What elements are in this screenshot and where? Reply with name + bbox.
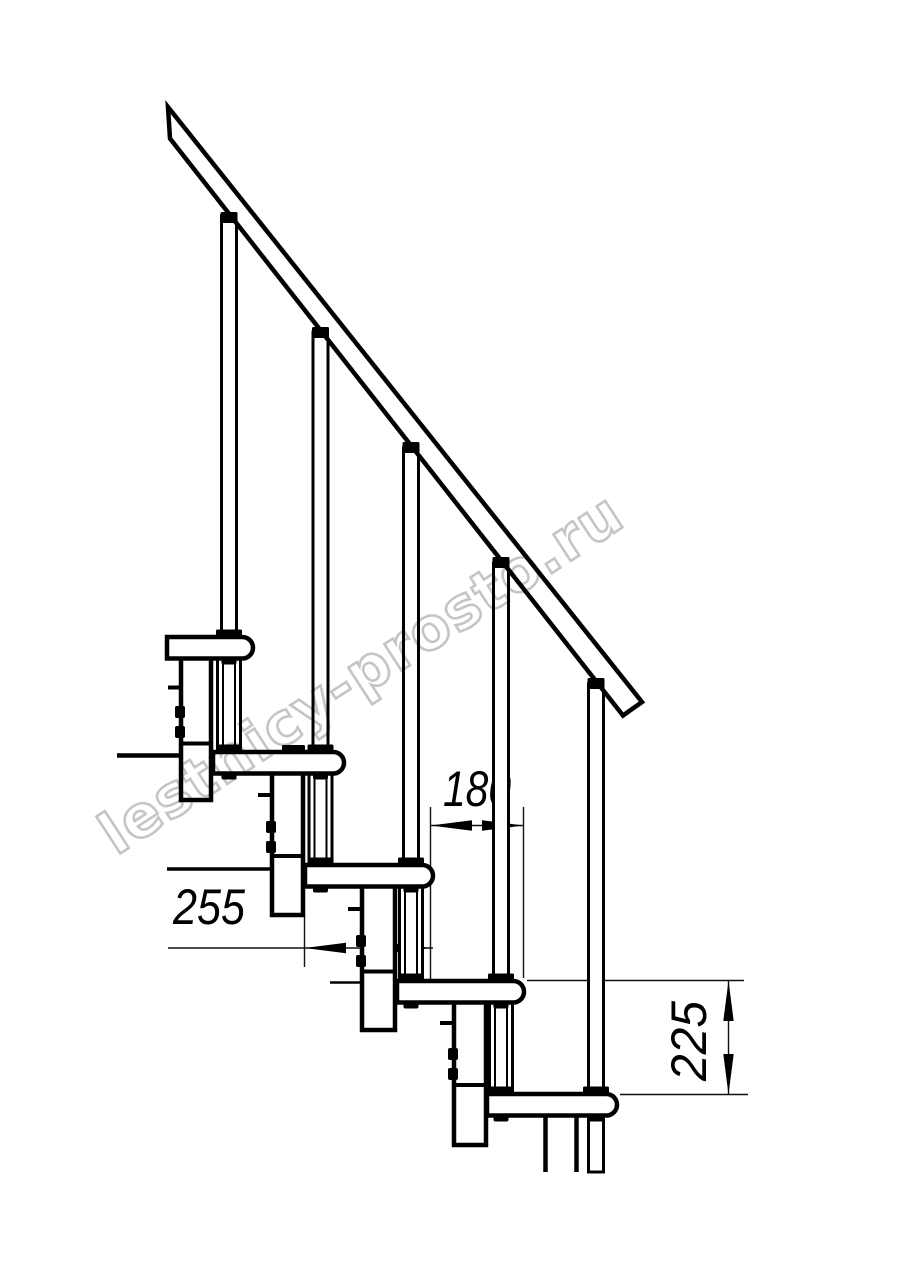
- nut-icon: [313, 773, 328, 780]
- nut-icon: [494, 1002, 509, 1009]
- arrowhead-left-icon: [305, 943, 347, 953]
- arrowhead-up-icon: [723, 981, 733, 1022]
- nut-icon: [404, 1002, 419, 1009]
- tread-5: [487, 1094, 617, 1116]
- baluster-cap-icon: [403, 442, 420, 453]
- clamp-icon: [175, 706, 185, 718]
- watermark: lestnicy-prosto.ru: [87, 479, 636, 868]
- dimension-value-tread-depth: 255: [172, 879, 245, 935]
- tread-3: [305, 865, 433, 887]
- clamp-icon: [175, 726, 185, 738]
- nut-icon: [589, 1115, 604, 1122]
- nut-icon: [222, 658, 237, 665]
- flange-icon: [488, 1087, 514, 1095]
- spacer-sleeve-4: [490, 1000, 513, 1096]
- flange-icon: [216, 630, 242, 638]
- dimension-rise: 225: [527, 981, 748, 1095]
- nut-icon: [313, 886, 328, 893]
- support-column-4: [454, 1002, 486, 1145]
- nut-icon: [404, 886, 419, 893]
- support-column-3: [362, 886, 395, 1030]
- spacer-sleeve-2: [309, 771, 332, 867]
- flange-icon: [308, 858, 334, 866]
- nut-icon: [494, 1115, 509, 1122]
- arrowhead-left-icon: [431, 820, 473, 830]
- flange-icon: [488, 974, 514, 982]
- clamp-icon: [356, 935, 366, 947]
- tread-4: [397, 981, 524, 1003]
- dimension-value-rise: 225: [661, 1001, 717, 1082]
- flange-icon: [398, 974, 424, 982]
- spacer-sleeve-3: [400, 884, 423, 983]
- staircase-side-view-drawing: 180 255 225: [0, 0, 914, 1280]
- clamp-icon: [266, 821, 276, 833]
- clamp-icon: [356, 955, 366, 967]
- support-column-5: [546, 1115, 577, 1172]
- clamp-icon: [266, 841, 276, 853]
- tread-1: [167, 637, 253, 659]
- technical-drawing-page: 180 255 225: [0, 0, 914, 1280]
- clamp-icon: [448, 1068, 458, 1080]
- flange-icon: [398, 858, 424, 866]
- flange-icon: [583, 1087, 609, 1095]
- clamp-icon: [448, 1048, 458, 1060]
- baluster-cap-icon: [312, 327, 329, 338]
- baluster-cap-icon: [221, 212, 238, 223]
- baluster-cap-icon: [588, 678, 605, 689]
- support-column-2: [272, 773, 303, 915]
- arrowhead-down-icon: [723, 1054, 733, 1095]
